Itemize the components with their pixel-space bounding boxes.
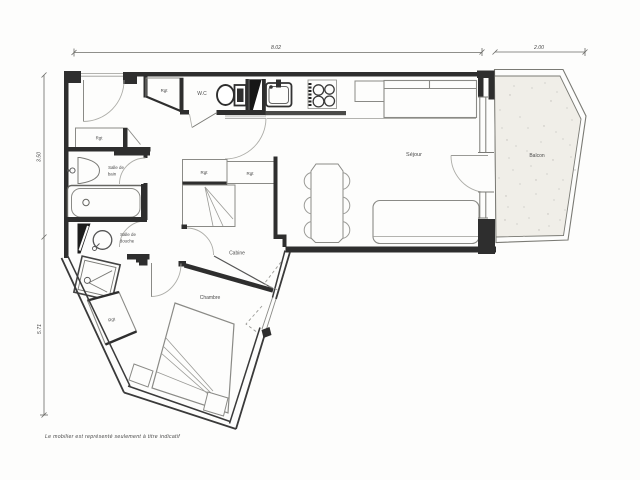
svg-text:2.00: 2.00	[533, 45, 544, 51]
svg-text:W.C: W.C	[197, 91, 207, 97]
svg-text:bain: bain	[108, 172, 117, 177]
svg-text:Chambre: Chambre	[200, 295, 221, 301]
svg-text:5.71: 5.71	[37, 324, 43, 334]
svg-text:8.02: 8.02	[271, 45, 281, 51]
svg-text:Cabine: Cabine	[229, 251, 245, 257]
svg-text:Rgt: Rgt	[161, 88, 169, 93]
svg-text:Salle de: Salle de	[120, 232, 136, 237]
svg-text:3.50: 3.50	[37, 152, 43, 162]
svg-text:Le mobilier est représenté seu: Le mobilier est représenté seulement à t…	[45, 434, 180, 440]
svg-text:Rgt: Rgt	[246, 171, 254, 176]
svg-text:Salle de: Salle de	[108, 165, 124, 170]
svg-text:Séjour: Séjour	[406, 152, 422, 158]
svg-text:Balcon: Balcon	[529, 153, 545, 159]
svg-text:douche: douche	[120, 239, 135, 244]
svg-text:Rgt: Rgt	[96, 136, 104, 141]
svg-text:Rgt: Rgt	[200, 170, 208, 175]
